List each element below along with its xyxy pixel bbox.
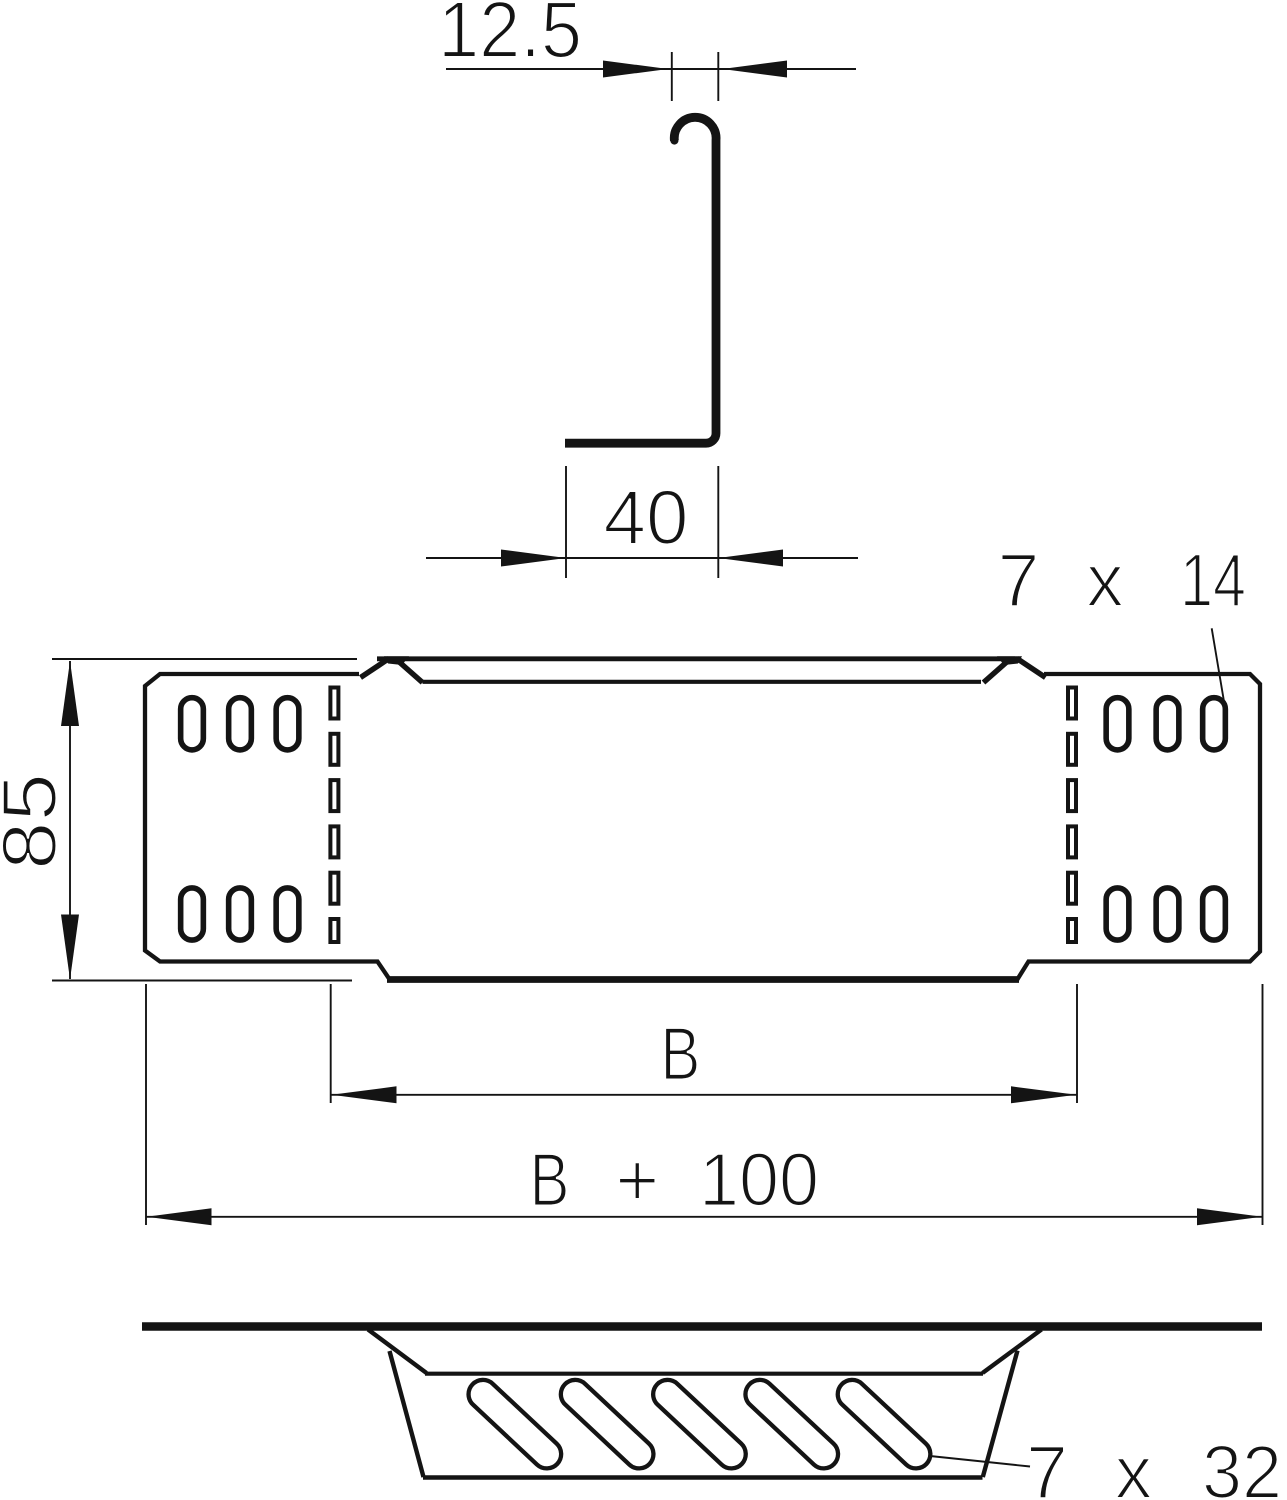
svg-text:40: 40 [604,475,689,561]
svg-text:12.5: 12.5 [438,0,582,74]
svg-text:x: x [1086,538,1124,622]
svg-text:100: 100 [699,1138,819,1222]
svg-text:x: x [1115,1430,1153,1500]
svg-text:7: 7 [1026,1430,1068,1500]
svg-text:85: 85 [0,773,73,870]
svg-text:+: + [615,1138,659,1222]
svg-text:32: 32 [1202,1430,1282,1500]
svg-text:7: 7 [998,538,1040,622]
svg-text:B: B [530,1138,570,1222]
svg-text:14: 14 [1180,538,1246,622]
svg-text:B: B [660,1012,700,1096]
